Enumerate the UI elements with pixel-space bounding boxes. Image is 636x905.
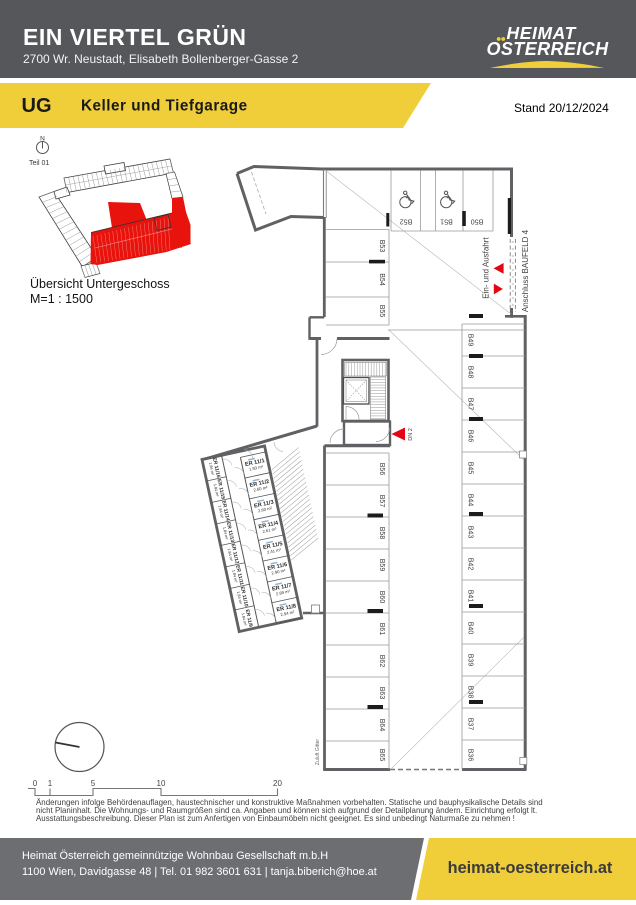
svg-text:B46: B46 xyxy=(467,430,474,443)
svg-text:B45: B45 xyxy=(467,462,474,475)
svg-text:0: 0 xyxy=(33,779,38,788)
svg-text:5: 5 xyxy=(91,779,96,788)
svg-text:Ein- und Ausfahrt: Ein- und Ausfahrt xyxy=(482,237,491,299)
svg-text:B56: B56 xyxy=(378,463,385,476)
svg-text:B50: B50 xyxy=(471,218,484,225)
svg-text:B63: B63 xyxy=(378,687,385,700)
svg-text:B58: B58 xyxy=(378,527,385,540)
svg-text:B38: B38 xyxy=(467,686,474,699)
svg-text:B53: B53 xyxy=(378,240,385,253)
svg-text:B54: B54 xyxy=(378,273,385,286)
svg-text:B44: B44 xyxy=(467,494,474,507)
svg-text:B41: B41 xyxy=(467,590,474,603)
svg-text:10: 10 xyxy=(157,779,166,788)
svg-text:1100 Wien, Davidgasse 48 | Tel: 1100 Wien, Davidgasse 48 | Tel. 01 982 3… xyxy=(22,866,377,878)
svg-text:B61: B61 xyxy=(378,623,385,636)
svg-text:B36: B36 xyxy=(467,749,474,762)
svg-text:B40: B40 xyxy=(467,622,474,635)
svg-text:B51: B51 xyxy=(440,218,453,225)
svg-text:B43: B43 xyxy=(467,526,474,539)
svg-text:B47: B47 xyxy=(467,398,474,411)
svg-text:B55: B55 xyxy=(378,305,385,318)
svg-text:B57: B57 xyxy=(378,495,385,508)
svg-text:B60: B60 xyxy=(378,591,385,604)
svg-text:B65: B65 xyxy=(378,749,385,762)
svg-text:B48: B48 xyxy=(467,366,474,379)
svg-text:Anschluss BAUFELD 4: Anschluss BAUFELD 4 xyxy=(521,229,530,312)
svg-text:B62: B62 xyxy=(378,655,385,668)
svg-text:B64: B64 xyxy=(378,719,385,732)
svg-text:DN 2: DN 2 xyxy=(408,428,414,441)
svg-text:Teil 01: Teil 01 xyxy=(29,160,49,167)
svg-text:B52: B52 xyxy=(400,218,413,225)
svg-text:heimat-oesterreich.at: heimat-oesterreich.at xyxy=(448,859,613,877)
svg-text:Zuluft Gitter: Zuluft Gitter xyxy=(315,739,321,765)
svg-text:1: 1 xyxy=(48,779,53,788)
svg-text:20: 20 xyxy=(273,779,282,788)
svg-text:B49: B49 xyxy=(467,334,474,347)
svg-text:B37: B37 xyxy=(467,718,474,731)
svg-text:Heimat Österreich gemeinnützig: Heimat Österreich gemeinnützige Wohnbau … xyxy=(22,850,328,862)
svg-text:B59: B59 xyxy=(378,559,385,572)
svg-text:B39: B39 xyxy=(467,654,474,667)
svg-text:B42: B42 xyxy=(467,558,474,571)
